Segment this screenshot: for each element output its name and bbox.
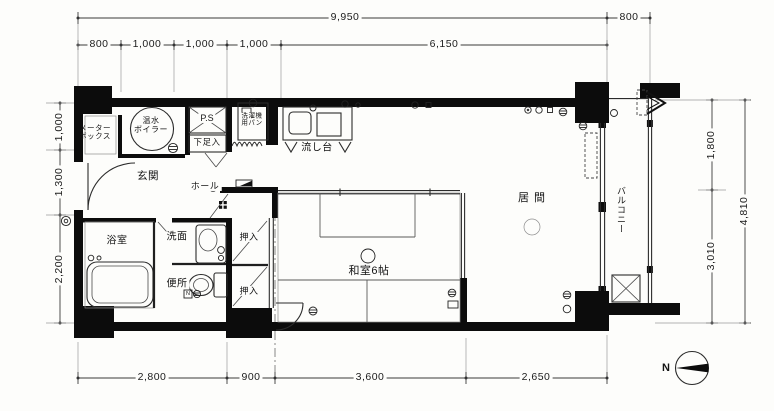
japanese-room-label: 和室6帖 (348, 265, 389, 277)
dim-left-2: 2,200 (54, 253, 66, 286)
bathroom-label: 浴室 (105, 235, 130, 246)
meter-box-label: メーター ボックス (79, 125, 111, 142)
ac-unit-dashed-box (585, 133, 597, 178)
drain-icon (611, 110, 618, 117)
dim-top-seg-0: 800 (87, 39, 110, 51)
outlet-icon (309, 307, 317, 315)
toilet-meter-mark: N (186, 291, 190, 297)
dim-right-1: 3,010 (706, 240, 718, 273)
floor-plan-drawing (0, 0, 774, 411)
meter-box-label-line2: ボックス (79, 133, 111, 141)
closet-upper-label: 押入 (237, 232, 260, 242)
washroom-label: 洗面 (165, 231, 190, 242)
accordion-curtain (232, 142, 262, 146)
hall-step-icon (236, 180, 252, 187)
north-compass (676, 352, 709, 385)
gas-meter-icon (61, 216, 70, 225)
dim-top-balcony: 800 (617, 12, 640, 24)
extension-lines (46, 24, 750, 372)
dim-bottom-0: 2,800 (136, 372, 169, 384)
dim-bottom-1: 900 (239, 372, 262, 384)
toilet (184, 273, 227, 298)
dim-bottom-2: 3,600 (354, 372, 387, 384)
compass-needle (676, 364, 709, 373)
dim-right-overall: 4,810 (739, 195, 751, 228)
wall-outlet-icon (448, 289, 458, 308)
closet-lower-label: 押入 (237, 286, 260, 296)
dim-right-0: 1,800 (706, 129, 718, 162)
dim-top-overall: 9,950 (329, 12, 362, 24)
compass-north-label: N (662, 362, 670, 374)
boiler-label: 温水 ボイラー (134, 117, 168, 135)
washer-pan-label-line2: 用パン (241, 120, 262, 127)
balcony-label: バルコニー (616, 186, 626, 234)
ceiling-light-icon (361, 249, 375, 263)
living-light-icon (524, 219, 540, 235)
dim-top-seg-4: 6,150 (428, 39, 461, 51)
dim-left-0: 1,000 (54, 111, 66, 144)
hall-label: ホール (189, 181, 222, 191)
kitchen-sink-label: 流し台 (299, 142, 335, 153)
entrance-label: 玄関 (137, 171, 159, 183)
shoe-box-label: 下足入 (193, 138, 220, 148)
floor-plan: 9,950 800 800 1,000 1,000 1,000 6,150 1,… (0, 0, 774, 411)
shaft-box (612, 275, 640, 302)
boiler-valve-icon (168, 143, 177, 152)
washer-pan-label: 洗濯機 用パン (239, 113, 264, 128)
pipe-space-label: P.S (198, 113, 215, 123)
entrance-door (88, 163, 135, 210)
living-room-label: 居間 (518, 192, 550, 204)
boiler-label-line2: ボイラー (134, 126, 168, 135)
japanese-room (276, 189, 465, 331)
dim-bottom-3: 2,650 (520, 372, 553, 384)
living-room (342, 101, 605, 313)
tatami-lines (278, 193, 460, 322)
toilet-label: 便所 (165, 278, 190, 289)
dim-top-seg-3: 1,000 (238, 39, 271, 51)
dim-top-seg-2: 1,000 (184, 39, 217, 51)
dim-top-seg-1: 1,000 (131, 39, 164, 51)
dim-left-1: 1,300 (54, 166, 66, 199)
